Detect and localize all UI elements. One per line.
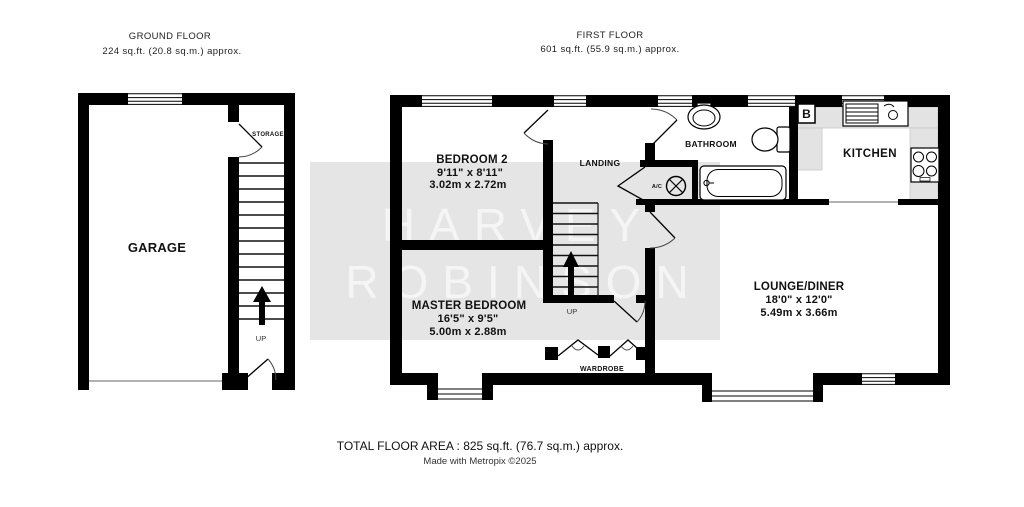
hob-icon [911, 148, 939, 182]
staircase-ground [239, 163, 284, 325]
master-bedroom-label: MASTER BEDROOM [412, 300, 527, 312]
master-bedroom-dims-imperial: 16'5" x 9'5" [438, 313, 499, 325]
ff-bottom-wall-4 [895, 373, 950, 385]
garage-left-wall [78, 93, 89, 390]
lounge-left-wall [645, 248, 655, 385]
ground-floor-area: 224 sq.ft. (20.8 sq.m.) approx. [102, 46, 241, 57]
divider-wall-top [228, 104, 239, 122]
ac-right-wall [692, 160, 698, 205]
ac-label: A/C [652, 184, 662, 190]
bathroom-door [651, 109, 677, 146]
garage-label: GARAGE [128, 240, 186, 255]
wardrobe-mid-post [598, 346, 610, 358]
ground-floor-header: GROUND FLOOR 224 sq.ft. (20.8 sq.m.) app… [102, 31, 241, 57]
lounge-label-group: LOUNGE/DINER 18'0" x 12'0" 5.49m x 3.66m [754, 281, 845, 319]
garage-bottom-left-post [78, 373, 89, 390]
stairwell-left-wall [543, 140, 553, 303]
master-bedroom-dims-metric: 5.00m x 2.88m [429, 326, 506, 338]
master-bay-window [427, 373, 493, 400]
kitchen-bottom-wall [898, 199, 950, 205]
storage-label: STORAGE [252, 132, 284, 138]
bedroom2-label-group: BEDROOM 2 9'11" x 8'11" 3.02m x 2.72m [429, 154, 507, 191]
garage-window [128, 93, 182, 105]
ff-left-wall [390, 95, 402, 385]
up-label-ground: UP [256, 334, 266, 343]
ff-bottom-wall-2 [493, 373, 702, 385]
first-floor-area: 601 sq.ft. (55.9 sq.m.) approx. [540, 44, 679, 55]
bed2-master-wall [402, 240, 553, 250]
bathtub-icon [700, 166, 786, 200]
bathroom-kitchen-wall [789, 107, 798, 199]
total-floor-area: TOTAL FLOOR AREA : 825 sq.ft. (76.7 sq.m… [337, 439, 624, 453]
bedroom2-dims-metric: 3.02m x 2.72m [429, 179, 506, 191]
wardrobe-label: WARDROBE [580, 366, 624, 373]
ground-floor-plan: GARAGE STORAGE UP [78, 93, 295, 390]
floorplan-page: GROUND FLOOR 224 sq.ft. (20.8 sq.m.) app… [0, 0, 1024, 507]
wardrobe: WARDROBE [545, 340, 655, 373]
toilet-icon [752, 127, 790, 152]
lounge-dims-imperial: 18'0" x 12'0" [765, 294, 832, 306]
landing-label: LANDING [580, 158, 621, 168]
ac-top-wall [640, 160, 698, 167]
garage-top-wall [78, 93, 295, 105]
bedroom2-door [524, 110, 548, 144]
footer: TOTAL FLOOR AREA : 825 sq.ft. (76.7 sq.m… [337, 439, 624, 467]
first-floor-title: FIRST FLOOR [576, 30, 643, 41]
floor-plan-canvas: GROUND FLOOR 224 sq.ft. (20.8 sq.m.) app… [0, 0, 1024, 507]
first-floor-header: FIRST FLOOR 601 sq.ft. (55.9 sq.m.) appr… [540, 30, 679, 55]
storage-door [239, 124, 262, 157]
lounge-rear-window [862, 373, 895, 385]
wardrobe-left-post [545, 347, 558, 360]
lounge-label: LOUNGE/DINER [754, 281, 845, 293]
lounge-dims-metric: 5.49m x 3.66m [760, 307, 837, 319]
ground-floor-title: GROUND FLOOR [129, 31, 211, 42]
entry-door [244, 359, 276, 380]
bedroom2-label: BEDROOM 2 [436, 154, 507, 166]
bathroom-label: BATHROOM [685, 139, 737, 149]
bathroom-window-2 [748, 95, 795, 107]
bedroom2-window [422, 95, 492, 107]
garage-right-wall [284, 93, 295, 390]
ff-right-wall [938, 95, 950, 385]
metropix-credit: Made with Metropix ©2025 [423, 456, 536, 467]
up-label-first: UP [567, 307, 577, 316]
ff-bottom-wall-1 [390, 373, 427, 385]
lounge-bay-window [702, 373, 823, 402]
bedroom2-dims-imperial: 9'11" x 8'11" [437, 167, 503, 179]
kitchen-label: KITCHEN [843, 148, 897, 160]
bathroom-fixtures [688, 103, 790, 200]
kitchen-sink-icon [843, 101, 908, 126]
bathroom-window-1 [658, 95, 692, 107]
boiler-label: B [802, 107, 811, 121]
divider-wall-main [228, 157, 239, 378]
ff-bottom-wall-3 [823, 373, 862, 385]
boiler-badge: B [798, 104, 815, 123]
landing-window [554, 95, 586, 107]
stairwell-bottom-wall [553, 295, 614, 303]
